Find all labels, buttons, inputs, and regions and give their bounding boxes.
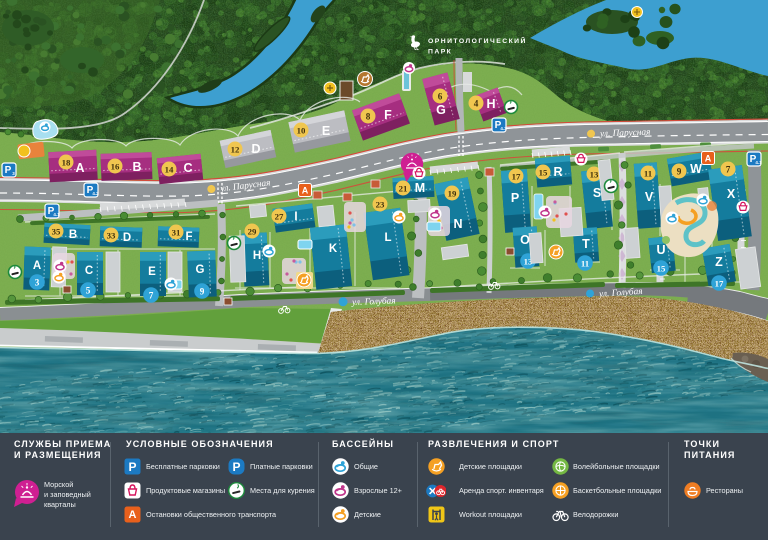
svg-text:H: H bbox=[253, 250, 261, 262]
svg-text:А: А bbox=[302, 186, 309, 196]
svg-text:19: 19 bbox=[448, 189, 457, 199]
svg-text:14: 14 bbox=[165, 165, 174, 175]
svg-text:P: P bbox=[5, 165, 12, 176]
svg-text:G: G bbox=[436, 103, 446, 117]
svg-text:S: S bbox=[593, 186, 601, 200]
svg-text:33: 33 bbox=[107, 231, 116, 241]
svg-text:I: I bbox=[294, 211, 297, 223]
svg-text:4.1: 4.1 bbox=[53, 212, 60, 217]
svg-text:ул. Голубая: ул. Голубая bbox=[351, 295, 396, 308]
svg-text:E: E bbox=[148, 266, 156, 278]
svg-text:А: А bbox=[129, 509, 137, 521]
svg-text:А: А bbox=[75, 161, 84, 175]
svg-text:B: B bbox=[69, 229, 77, 241]
svg-text:P: P bbox=[232, 460, 240, 474]
svg-text:W: W bbox=[690, 162, 702, 176]
svg-text:11: 11 bbox=[581, 259, 589, 269]
svg-text:G: G bbox=[196, 264, 205, 276]
svg-text:P: P bbox=[511, 191, 519, 205]
svg-text:А: А bbox=[705, 154, 712, 164]
svg-text:15: 15 bbox=[539, 168, 548, 178]
svg-text:15: 15 bbox=[657, 264, 666, 274]
svg-text:35: 35 bbox=[52, 227, 61, 237]
svg-text:U: U bbox=[656, 243, 665, 257]
svg-text:3: 3 bbox=[35, 278, 40, 288]
svg-text:9: 9 bbox=[200, 287, 205, 297]
svg-text:9: 9 bbox=[677, 167, 682, 177]
svg-text:31: 31 bbox=[172, 228, 181, 238]
svg-text:V: V bbox=[645, 190, 654, 204]
svg-text:13: 13 bbox=[590, 170, 599, 180]
svg-text:4.2: 4.2 bbox=[92, 191, 99, 196]
svg-text:K: K bbox=[329, 243, 338, 255]
svg-text:O: O bbox=[520, 233, 530, 247]
svg-text:27: 27 bbox=[275, 212, 284, 222]
svg-text:D: D bbox=[251, 142, 260, 156]
svg-text:4.1: 4.1 bbox=[755, 160, 762, 165]
svg-text:E: E bbox=[322, 124, 330, 138]
svg-text:H: H bbox=[486, 97, 495, 111]
svg-text:12: 12 bbox=[231, 145, 240, 155]
svg-text:T: T bbox=[582, 237, 590, 251]
svg-text:11: 11 bbox=[644, 169, 652, 179]
svg-text:X: X bbox=[727, 187, 736, 201]
svg-text:7: 7 bbox=[726, 165, 731, 175]
svg-text:M: M bbox=[415, 181, 425, 195]
svg-text:23: 23 bbox=[376, 200, 385, 210]
svg-text:С: С bbox=[183, 161, 192, 175]
svg-text:18: 18 bbox=[62, 158, 71, 168]
svg-text:ПАРК: ПАРК bbox=[428, 49, 452, 56]
svg-text:17: 17 bbox=[512, 172, 521, 182]
svg-text:17: 17 bbox=[715, 279, 724, 289]
svg-text:D: D bbox=[123, 232, 131, 244]
svg-text:Z: Z bbox=[715, 255, 723, 269]
svg-text:F: F bbox=[185, 231, 192, 243]
svg-text:16: 16 bbox=[111, 162, 120, 172]
svg-text:8: 8 bbox=[366, 112, 371, 122]
svg-text:5: 5 bbox=[86, 286, 91, 296]
svg-text:ОРНИТОЛОГИЧЕСКИЙ: ОРНИТОЛОГИЧЕСКИЙ bbox=[428, 36, 527, 45]
svg-text:R: R bbox=[553, 165, 562, 179]
svg-text:6: 6 bbox=[438, 92, 443, 102]
svg-text:10: 10 bbox=[297, 126, 306, 136]
svg-text:P: P bbox=[128, 460, 136, 474]
svg-text:C: C bbox=[85, 265, 93, 277]
svg-text:4: 4 bbox=[474, 99, 479, 109]
svg-text:A: A bbox=[33, 260, 41, 272]
svg-text:N: N bbox=[453, 217, 462, 231]
svg-text:F: F bbox=[384, 108, 392, 122]
svg-text:L: L bbox=[384, 232, 391, 244]
svg-text:29: 29 bbox=[248, 227, 257, 237]
svg-text:ул. Парусная: ул. Парусная bbox=[599, 128, 651, 140]
svg-text:7: 7 bbox=[149, 291, 154, 301]
svg-text:4.3: 4.3 bbox=[500, 126, 507, 131]
svg-text:В: В bbox=[132, 160, 141, 174]
svg-text:21: 21 bbox=[399, 184, 408, 194]
